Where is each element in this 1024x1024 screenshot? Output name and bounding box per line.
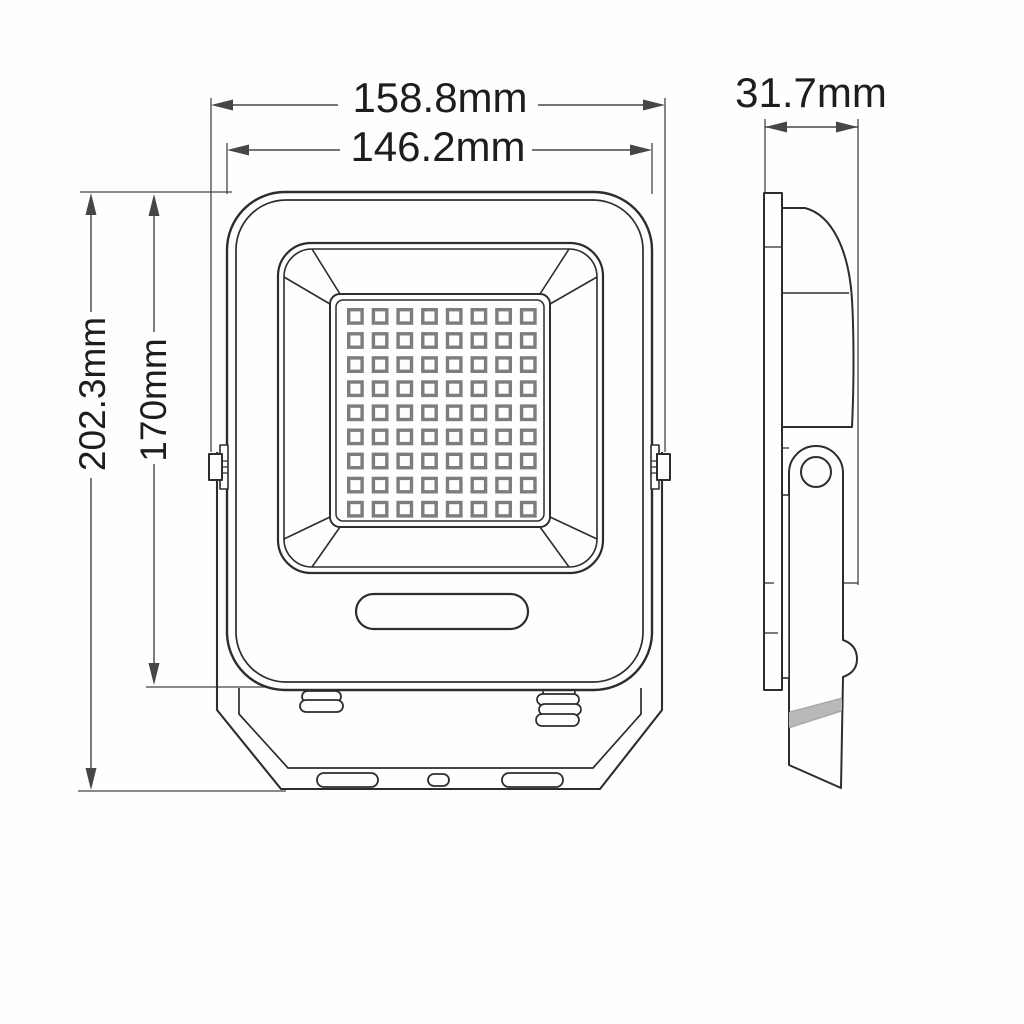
cable-gland xyxy=(300,691,343,712)
dim-label-width-overall: 158.8mm xyxy=(352,74,527,121)
bracket-slot-right xyxy=(502,773,563,787)
dimension-depth: 31.7mm xyxy=(735,69,887,133)
floodlight-dimension-drawing: 158.8mm 146.2mm 31.7mm 202.3mm 170mm xyxy=(0,0,1024,1024)
dim-label-height-body: 170mm xyxy=(133,338,174,461)
dimension-width-overall: 158.8mm xyxy=(211,74,665,121)
side-view xyxy=(764,193,858,788)
adjustment-screw xyxy=(536,688,581,726)
side-bracket-arm xyxy=(789,446,857,788)
dim-label-depth: 31.7mm xyxy=(735,69,887,116)
side-pivot-hole xyxy=(801,457,831,487)
arrow-up-icon xyxy=(149,194,160,216)
arrow-left-icon xyxy=(765,122,787,133)
side-rib xyxy=(782,495,789,678)
arrow-up-icon xyxy=(86,193,97,215)
dimension-height-body: 170mm xyxy=(133,194,174,685)
arrow-right-icon xyxy=(836,122,858,133)
technical-drawing-page: 158.8mm 146.2mm 31.7mm 202.3mm 170mm xyxy=(0,0,1024,1024)
bracket-hole-center xyxy=(428,774,449,786)
arrow-down-icon xyxy=(149,663,160,685)
dim-label-width-body: 146.2mm xyxy=(350,123,525,170)
floodlight-body xyxy=(227,192,652,690)
arrow-left-icon xyxy=(211,100,233,111)
arrow-right-icon xyxy=(643,100,665,111)
arrow-right-icon xyxy=(630,145,652,156)
dim-label-height-overall: 202.3mm xyxy=(72,317,113,471)
mounting-ear-right xyxy=(651,445,670,489)
dimension-height-overall: 202.3mm xyxy=(72,193,113,790)
bracket-slot-left xyxy=(317,773,378,787)
front-view xyxy=(209,192,670,789)
mounting-ear-left xyxy=(209,445,228,489)
arrow-left-icon xyxy=(227,145,249,156)
arrow-down-icon xyxy=(86,768,97,790)
dimension-width-body: 146.2mm xyxy=(227,123,652,170)
